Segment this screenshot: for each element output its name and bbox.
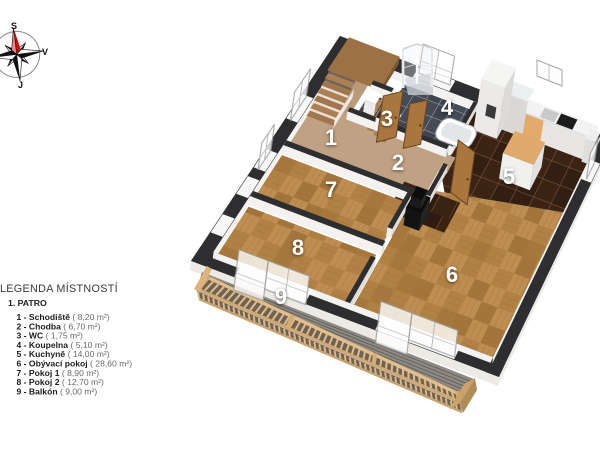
svg-text:V: V xyxy=(42,47,48,57)
svg-text:1: 1 xyxy=(325,125,337,150)
svg-text:4: 4 xyxy=(441,95,454,120)
svg-text:J: J xyxy=(18,80,23,90)
svg-text:8: 8 xyxy=(292,235,304,260)
svg-text:1. PATRO: 1. PATRO xyxy=(8,298,47,308)
svg-text:9 - Balkón ( 9,00 m²): 9 - Balkón ( 9,00 m²) xyxy=(17,386,98,396)
svg-text:5: 5 xyxy=(503,164,515,189)
svg-text:3: 3 xyxy=(381,106,393,131)
svg-text:LEGENDA MÍSTNOSTÍ: LEGENDA MÍSTNOSTÍ xyxy=(0,282,118,295)
svg-text:7: 7 xyxy=(325,177,337,202)
svg-text:S: S xyxy=(11,21,17,31)
svg-text:9: 9 xyxy=(275,284,287,309)
svg-text:6: 6 xyxy=(446,262,458,287)
svg-text:2: 2 xyxy=(392,150,404,175)
